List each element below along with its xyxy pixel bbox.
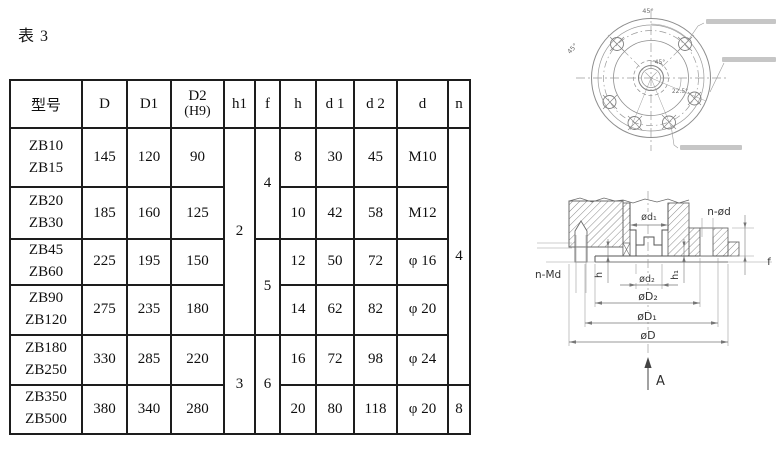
col-header-model: 型号 xyxy=(10,80,82,128)
cell-model: ZB350ZB500 xyxy=(10,385,82,434)
flange-front-view-drawing: 45° 45° 45° 22.5° xyxy=(540,2,784,172)
document-page: 表 3 型号 D D1 D2 (H9) h1 f h d 1 d 2 d n Z… xyxy=(0,0,784,459)
col-header-d2: d 2 xyxy=(354,80,397,128)
cell-f-merged: 5 xyxy=(255,239,280,335)
angle-label-inner: 45° xyxy=(655,59,666,66)
angle-label-lower-right: 22.5° xyxy=(672,88,688,95)
cell-D2: 220 xyxy=(171,335,224,385)
cell-d1: 42 xyxy=(316,187,354,239)
table-row: ZB180ZB250 330 285 220 3 6 16 72 98 φ 24 xyxy=(10,335,470,385)
dim-label-od2: ød₂ xyxy=(639,274,655,285)
cell-D: 275 xyxy=(82,285,127,335)
cell-h: 12 xyxy=(280,239,316,285)
col-header-D1: D1 xyxy=(127,80,171,128)
cell-d2: 98 xyxy=(354,335,397,385)
col-header-f: f xyxy=(255,80,280,128)
dim-label-n-od: n-ød xyxy=(707,206,731,218)
header-row: 型号 D D1 D2 (H9) h1 f h d 1 d 2 d n xyxy=(10,80,470,128)
cell-D1: 195 xyxy=(127,239,171,285)
cell-D: 380 xyxy=(82,385,127,434)
col-header-D: D xyxy=(82,80,127,128)
leader-note-top-right xyxy=(687,19,776,42)
housing-section xyxy=(569,198,623,262)
cell-d2: 118 xyxy=(354,385,397,434)
section-view-drawing: ød₁ ød₂ øD₂ xyxy=(532,185,784,400)
cell-model: ZB45ZB60 xyxy=(10,239,82,285)
col-header-D2: D2 (H9) xyxy=(171,80,224,128)
cell-h: 16 xyxy=(280,335,316,385)
cell-model: ZB20ZB30 xyxy=(10,187,82,239)
cell-h: 8 xyxy=(280,128,316,187)
col-header-d1: d 1 xyxy=(316,80,354,128)
dim-label-oD: øD xyxy=(640,329,655,342)
view-label-A: A xyxy=(656,374,665,389)
dim-label-f: f xyxy=(767,257,771,268)
cell-model: ZB90ZB120 xyxy=(10,285,82,335)
table-row: ZB10ZB15 145 120 90 2 4 8 30 45 M10 4 xyxy=(10,128,470,187)
cell-d: M12 xyxy=(397,187,448,239)
cell-h: 20 xyxy=(280,385,316,434)
dim-label-n-md: n-Md xyxy=(535,269,561,281)
dim-label-h: h xyxy=(594,272,605,278)
dim-label-h1: h₁ xyxy=(670,270,681,280)
cell-n-merged: 4 xyxy=(448,128,470,385)
cell-d1: 30 xyxy=(316,128,354,187)
cell-d2: 72 xyxy=(354,239,397,285)
cell-D1: 340 xyxy=(127,385,171,434)
cell-d2: 45 xyxy=(354,128,397,187)
angle-label-left: 45° xyxy=(566,42,580,56)
dim-label-od1: ød₁ xyxy=(641,212,657,223)
cell-d1: 62 xyxy=(316,285,354,335)
cell-D: 185 xyxy=(82,187,127,239)
spec-table: 型号 D D1 D2 (H9) h1 f h d 1 d 2 d n ZB10Z… xyxy=(9,79,471,435)
cell-model: ZB10ZB15 xyxy=(10,128,82,187)
cell-d2: 82 xyxy=(354,285,397,335)
bolt-holes xyxy=(603,37,701,130)
leader-note-right xyxy=(710,57,776,92)
view-arrow-A: A xyxy=(644,357,665,390)
col-header-h: h xyxy=(280,80,316,128)
cell-D2: 180 xyxy=(171,285,224,335)
cell-D1: 285 xyxy=(127,335,171,385)
col-header-n: n xyxy=(448,80,470,128)
cell-d: φ 20 xyxy=(397,285,448,335)
cell-d: φ 16 xyxy=(397,239,448,285)
dim-od1: ød₁ xyxy=(630,212,668,227)
cell-n: 8 xyxy=(448,385,470,434)
cell-h: 14 xyxy=(280,285,316,335)
cell-D: 145 xyxy=(82,128,127,187)
cell-f-merged: 4 xyxy=(255,128,280,239)
cell-d: φ 24 xyxy=(397,335,448,385)
cell-h1-merged: 2 xyxy=(224,128,255,335)
cell-d2: 58 xyxy=(354,187,397,239)
cell-f-merged: 6 xyxy=(255,335,280,434)
cell-D2: 280 xyxy=(171,385,224,434)
cell-D1: 235 xyxy=(127,285,171,335)
col-header-h1: h1 xyxy=(224,80,255,128)
cell-h1-merged: 3 xyxy=(224,335,255,434)
cell-D1: 160 xyxy=(127,187,171,239)
cell-d: M10 xyxy=(397,128,448,187)
cell-model: ZB180ZB250 xyxy=(10,335,82,385)
cell-D: 330 xyxy=(82,335,127,385)
angle-label-top: 45° xyxy=(642,7,654,15)
cell-d1: 80 xyxy=(316,385,354,434)
table-caption: 表 3 xyxy=(18,22,49,46)
dim-label-oD1: øD₁ xyxy=(637,310,657,323)
cell-D2: 125 xyxy=(171,187,224,239)
col-header-d: d xyxy=(397,80,448,128)
dim-label-oD2: øD₂ xyxy=(638,290,658,303)
cell-d1: 50 xyxy=(316,239,354,285)
cell-D1: 120 xyxy=(127,128,171,187)
cell-d1: 72 xyxy=(316,335,354,385)
cell-d: φ 20 xyxy=(397,385,448,434)
cell-D2: 90 xyxy=(171,128,224,187)
cell-D2: 150 xyxy=(171,239,224,285)
cell-h: 10 xyxy=(280,187,316,239)
cell-D: 225 xyxy=(82,239,127,285)
